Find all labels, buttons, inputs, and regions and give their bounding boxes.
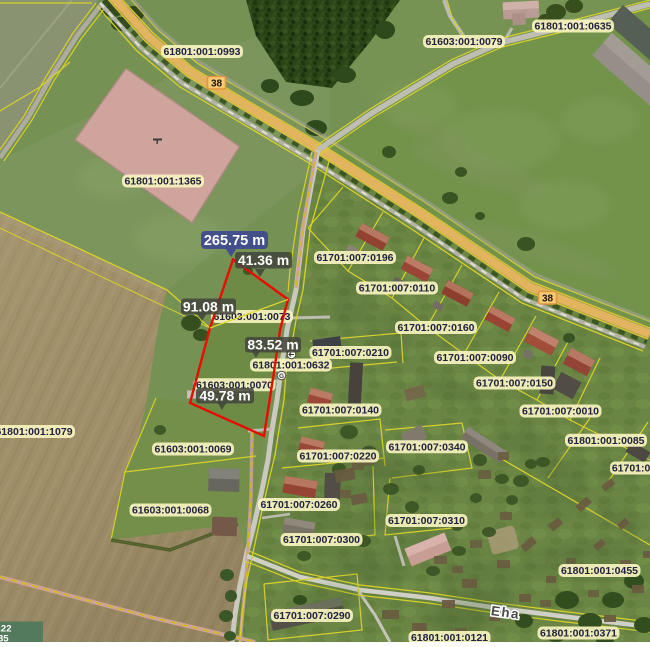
- svg-text:41.36 m: 41.36 m: [238, 252, 289, 268]
- svg-text:61801:001:0993: 61801:001:0993: [163, 46, 240, 58]
- svg-text:61801:001:1079: 61801:001:1079: [0, 426, 73, 438]
- svg-text:61701:007:0220: 61701:007:0220: [299, 451, 376, 463]
- svg-text:61701:007:0340: 61701:007:0340: [388, 441, 465, 453]
- svg-text:61801:001:0455: 61801:001:0455: [561, 565, 638, 577]
- svg-text:61701:007:0160: 61701:007:0160: [397, 322, 474, 334]
- svg-text:61701:007:0260: 61701:007:0260: [260, 499, 337, 511]
- svg-text:61701:007:0010: 61701:007:0010: [522, 406, 599, 418]
- svg-text:91.08 m: 91.08 m: [183, 299, 234, 315]
- svg-text:61701:007:0310: 61701:007:0310: [388, 515, 465, 527]
- svg-text:61801:001:0121: 61801:001:0121: [411, 632, 488, 642]
- svg-text:61701:007:0290: 61701:007:0290: [273, 610, 350, 622]
- svg-text:61701:00: 61701:00: [612, 463, 650, 475]
- svg-text:61701:007:0300: 61701:007:0300: [283, 534, 360, 546]
- svg-text:265.75 m: 265.75 m: [204, 233, 265, 249]
- svg-text:61801:001:0085: 61801:001:0085: [567, 435, 644, 447]
- svg-text:38: 38: [542, 294, 554, 305]
- svg-text:61801:001:0371: 61801:001:0371: [540, 628, 617, 640]
- svg-text:35: 35: [0, 634, 9, 643]
- svg-text:61701:007:0210: 61701:007:0210: [312, 347, 389, 359]
- svg-text:38: 38: [211, 79, 223, 90]
- svg-text:G: G: [279, 373, 284, 380]
- svg-text:61701:007:0090: 61701:007:0090: [436, 352, 513, 364]
- svg-text:61603:001:0068: 61603:001:0068: [132, 505, 209, 517]
- svg-text:61701:007:0150: 61701:007:0150: [476, 378, 553, 390]
- svg-text:61701:007:0196: 61701:007:0196: [316, 252, 393, 264]
- svg-text:61801:001:1365: 61801:001:1365: [124, 176, 201, 188]
- svg-text:61701:007:0110: 61701:007:0110: [359, 283, 436, 295]
- svg-text:49.78 m: 49.78 m: [199, 388, 250, 404]
- svg-text:83.52 m: 83.52 m: [247, 337, 298, 353]
- svg-text:61603:001:0079: 61603:001:0079: [425, 36, 502, 48]
- svg-text:61603:001:0069: 61603:001:0069: [154, 444, 231, 456]
- svg-text:61801:001:0635: 61801:001:0635: [534, 21, 611, 33]
- svg-text:61701:007:0140: 61701:007:0140: [302, 405, 379, 417]
- svg-text:61801:001:0632: 61801:001:0632: [252, 360, 329, 372]
